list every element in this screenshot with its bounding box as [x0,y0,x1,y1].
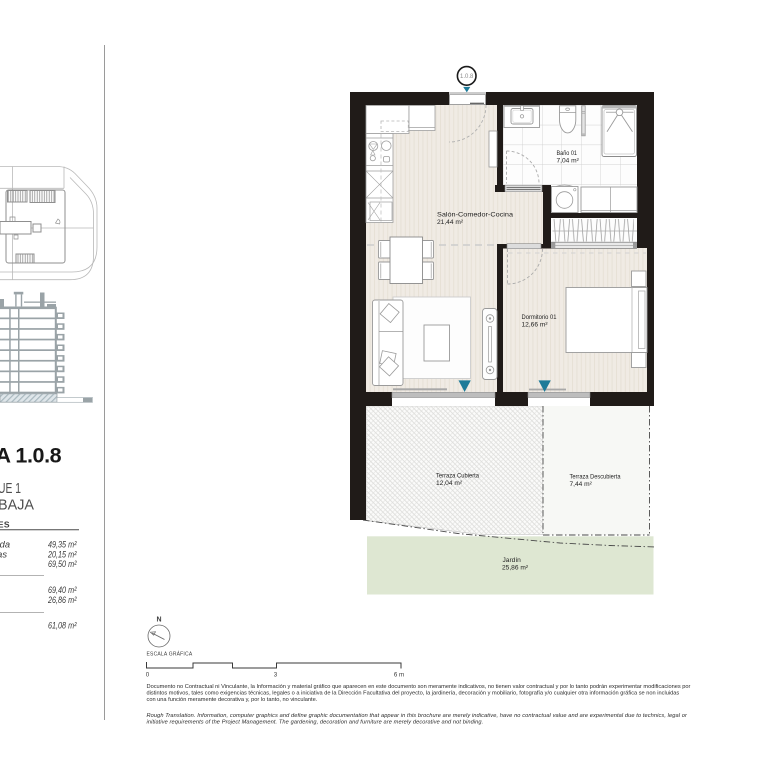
svg-text:ESCALA GRÁFICA: ESCALA GRÁFICA [147,651,193,658]
svg-text:61,08 m²: 61,08 m² [48,620,77,630]
svg-text:distintos motivos, tales como: distintos motivos, tales como exigencias… [147,691,680,697]
svg-text:12,04 m²: 12,04 m² [436,480,463,487]
svg-text:IES: IES [0,520,10,530]
svg-text:69,40 m²: 69,40 m² [48,585,77,595]
svg-text:Baño 01: Baño 01 [557,150,578,157]
svg-text:Documento no Contractual ni Vi: Documento no Contractual ni Vinculante, … [147,684,691,690]
svg-text:da: da [0,540,10,550]
svg-text:Dormitorio 01: Dormitorio 01 [522,314,557,321]
svg-text:0: 0 [146,672,150,679]
svg-text:N: N [156,617,161,624]
svg-text:Terraza Cubierta: Terraza Cubierta [436,473,479,480]
svg-text:69,50 m²: 69,50 m² [48,559,77,569]
svg-text:3: 3 [274,672,278,679]
svg-text:1.0.8: 1.0.8 [460,74,474,80]
svg-text:21,44 m²: 21,44 m² [437,219,464,226]
svg-text:A 1.0.8: A 1.0.8 [0,444,62,468]
svg-text:49,35 m²: 49,35 m² [48,540,77,550]
svg-text:12,66 m²: 12,66 m² [522,322,549,329]
svg-text:7,44 m²: 7,44 m² [570,481,593,488]
svg-text:Salón-Comedor-Cocina: Salón-Comedor-Cocina [437,212,513,219]
svg-text:6 m: 6 m [394,672,404,679]
svg-text:26,86 m²: 26,86 m² [47,595,77,605]
svg-text:initiative requirements of the: initiative requirements of the Project M… [147,720,484,726]
svg-text:as: as [0,550,7,560]
svg-text:UE 1: UE 1 [0,481,21,497]
svg-text:BAJA: BAJA [0,498,34,514]
svg-text:con una función meramente deco: con una función meramente decorativa y, … [147,697,318,703]
svg-text:Jardín: Jardín [503,557,522,564]
svg-text:Rough Translation. Information: Rough Translation. Information, computer… [147,713,688,719]
svg-text:25,86 m²: 25,86 m² [502,565,529,572]
svg-text:7,04 m²: 7,04 m² [557,158,580,165]
svg-text:Terraza Descubierta: Terraza Descubierta [570,474,621,481]
